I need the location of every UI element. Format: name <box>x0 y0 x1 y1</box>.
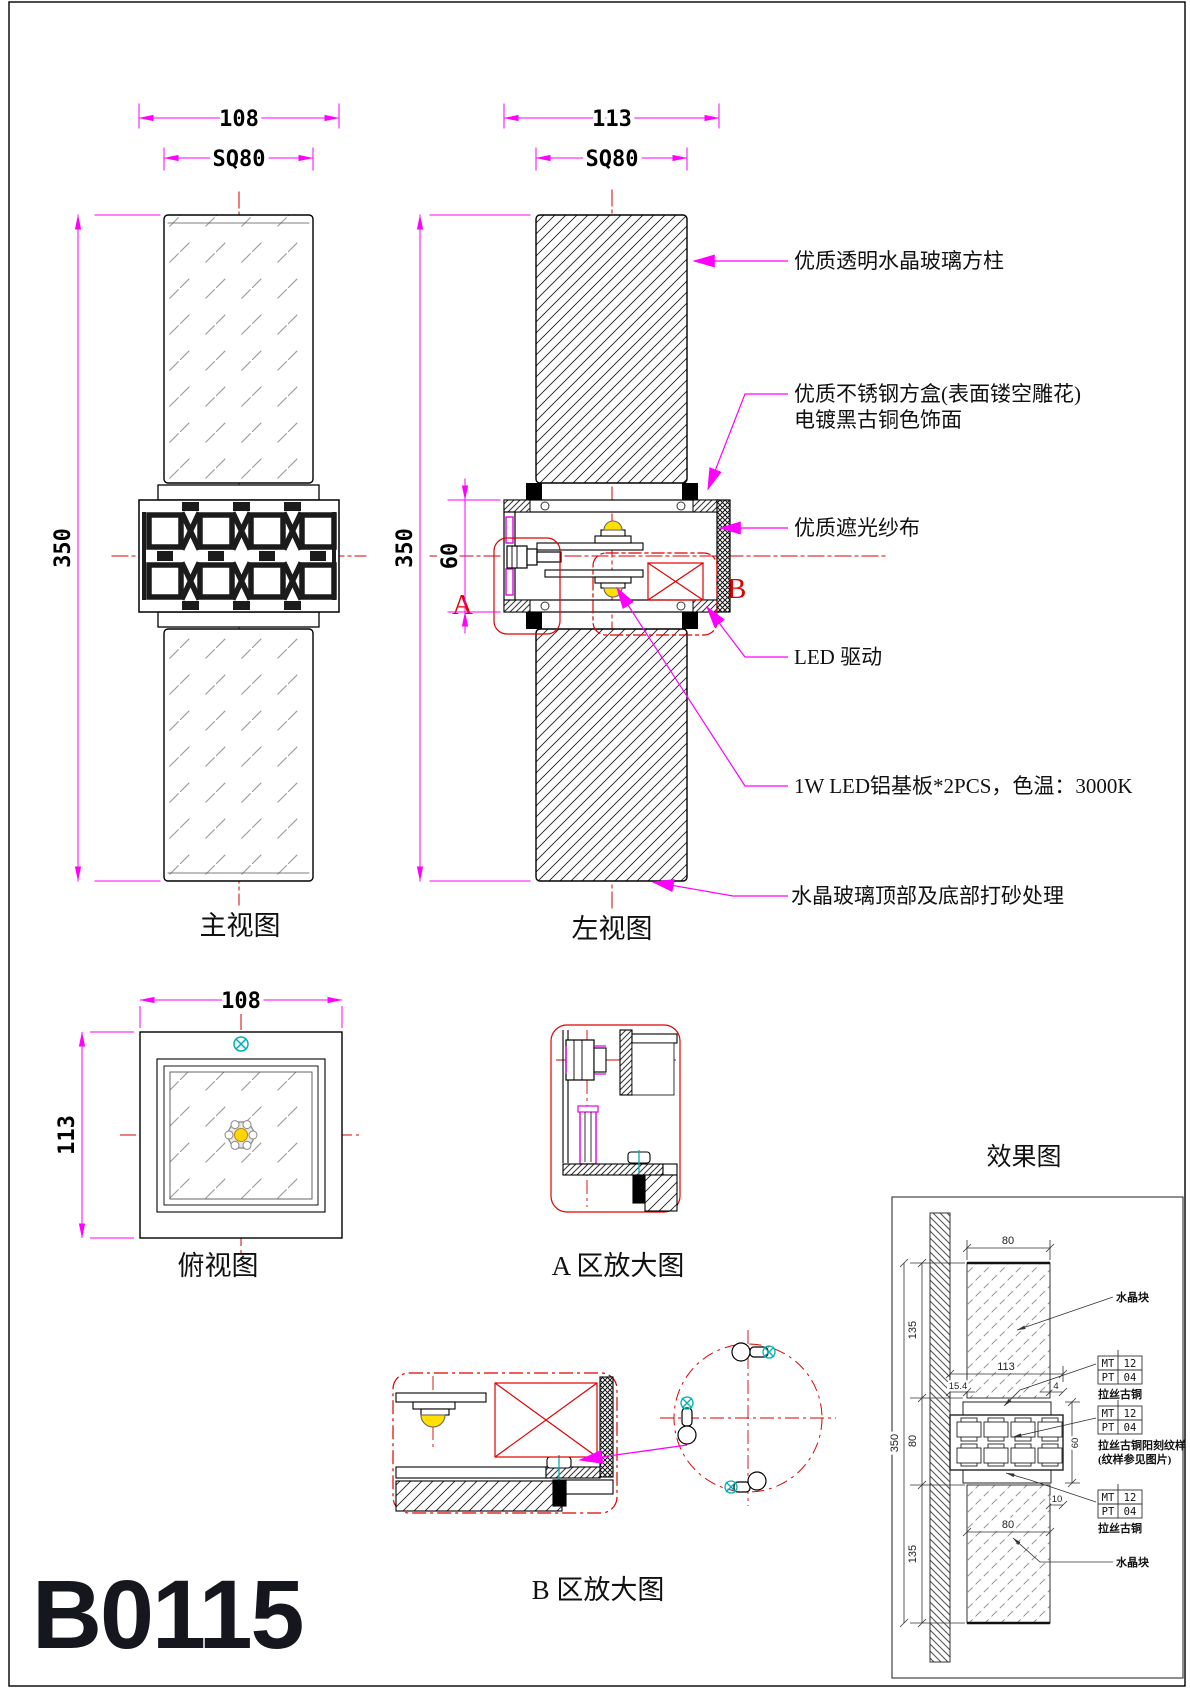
effect-note-top: 水晶块 <box>1116 1290 1150 1304</box>
annotation-sandblast: 水晶玻璃顶部及底部打砂处理 <box>791 884 1064 908</box>
table1-cell: 04 <box>1124 1372 1137 1384</box>
sheet-code: B0115 <box>32 1560 303 1669</box>
detail-b-led-dome <box>421 1415 445 1427</box>
zone-a-label: A <box>452 589 473 621</box>
left-dim-width: 113 <box>592 107 632 132</box>
eff-dim-lower-offset: 10 <box>1052 1494 1063 1505</box>
top-dim-width: 108 <box>221 989 261 1014</box>
front-glass-upper <box>164 215 313 483</box>
led-driver-box <box>648 563 703 600</box>
table3-cell: MT <box>1102 1492 1115 1504</box>
table1-cell: PT <box>1102 1372 1115 1384</box>
top-view-label: 俯视图 <box>178 1251 259 1281</box>
standoff-pin-top <box>506 517 513 543</box>
table2-cell: MT <box>1102 1408 1115 1420</box>
eff-dim-total-height: 350 <box>889 1434 901 1452</box>
eff-dim-box-height: 60 <box>1070 1438 1081 1449</box>
detail-a-parts <box>563 1030 677 1211</box>
led-dome-up <box>604 521 622 530</box>
detail-b-parts <box>396 1377 613 1511</box>
table1-label: 拉丝古铜 <box>1098 1387 1142 1401</box>
table1-cell: 12 <box>1124 1358 1137 1370</box>
table2-cell: PT <box>1102 1422 1115 1434</box>
front-flange-bottom <box>158 612 319 627</box>
effect-glass-upper <box>967 1263 1050 1398</box>
effect-note-bottom: 水晶块 <box>1116 1555 1150 1569</box>
detail-b-label: B 区放大图 <box>532 1575 665 1605</box>
detail-a: A 区放大图 <box>551 1025 684 1281</box>
table2-cell: 12 <box>1124 1408 1137 1420</box>
effect-diagram: 效果图 <box>889 1143 1186 1678</box>
fixing-ring-detail <box>580 1330 836 1506</box>
annotation-led-board: 1W LED铝基板*2PCS，色温：3000K <box>794 774 1133 798</box>
top-dim-depth: 113 <box>55 1115 80 1155</box>
left-view-label: 左视图 <box>572 914 653 944</box>
led-module-up <box>537 521 643 550</box>
clamp-screws <box>681 1346 775 1493</box>
clamp-icons <box>678 1343 768 1492</box>
left-dim-box-height: 60 <box>438 543 463 570</box>
zone-b-label: B <box>727 573 746 605</box>
table3-label: 拉丝古铜 <box>1098 1521 1142 1535</box>
effect-title: 效果图 <box>986 1143 1061 1171</box>
table3-cell: 12 <box>1124 1492 1137 1504</box>
front-dim-width: 108 <box>219 107 259 132</box>
table3-cell: 04 <box>1124 1506 1137 1518</box>
front-dim-height: 350 <box>51 528 76 568</box>
annotation-led-driver: LED 驱动 <box>794 645 882 669</box>
ring-leader <box>580 1445 687 1460</box>
front-view-label: 主视图 <box>200 911 281 941</box>
detail-a-label: A 区放大图 <box>552 1251 685 1281</box>
front-view: 108 SQ80 350 主视图 <box>51 104 366 941</box>
drawing-sheet: 108 SQ80 350 主视图 <box>0 0 1190 1690</box>
detail-b-driver-box <box>495 1383 597 1457</box>
annotation-glass-column: 优质透明水晶玻璃方柱 <box>794 249 1004 273</box>
fixing-screw-icon <box>234 1037 248 1051</box>
eff-dim-top-width: 80 <box>1002 1235 1014 1247</box>
eff-dim-zone-height: 80 <box>907 1435 919 1447</box>
front-flange-top <box>158 485 319 500</box>
eff-dim-lower-height: 135 <box>907 1545 919 1563</box>
table2-label: 拉丝古铜阳刻纹样 <box>1098 1438 1186 1452</box>
effect-wall <box>930 1213 950 1662</box>
front-glass-lower <box>164 629 313 881</box>
left-dim-height: 350 <box>393 528 418 568</box>
table2-label2: (纹样参见图片) <box>1098 1452 1172 1466</box>
top-view: 108 113 俯视图 <box>55 989 362 1281</box>
annotation-gauze: 优质遮光纱布 <box>794 516 920 540</box>
eff-dim-offset-left: 15.4 <box>949 1381 968 1392</box>
effect-glass-lower <box>967 1485 1050 1623</box>
annotation-steel-box-1: 优质不锈钢方盒(表面镂空雕花) <box>794 382 1081 406</box>
effect-steel-box <box>950 1402 1063 1483</box>
callout-annotations: 优质透明水晶玻璃方柱 优质不锈钢方盒(表面镂空雕花) 电镀黑古铜色饰面 优质遮光… <box>617 249 1133 908</box>
front-dim-square: SQ80 <box>213 147 266 172</box>
cad-canvas: 108 SQ80 350 主视图 <box>0 0 1190 1690</box>
table2-cell: 04 <box>1124 1422 1137 1434</box>
table3-cell: PT <box>1102 1506 1115 1518</box>
left-glass-upper <box>536 215 687 483</box>
left-glass-lower <box>536 629 687 881</box>
annotation-steel-box-2: 电镀黑古铜色饰面 <box>794 408 962 432</box>
table1-cell: MT <box>1102 1358 1115 1370</box>
eff-dim-upper-height: 135 <box>907 1321 919 1339</box>
eff-dim-depth: 113 <box>997 1361 1015 1373</box>
eff-dim-offset-right: 4 <box>1053 1381 1058 1392</box>
eff-dim-lower-width: 80 <box>1002 1519 1014 1531</box>
standoff-pin-bottom <box>506 569 513 595</box>
detail-b: B 区放大图 <box>393 1373 664 1605</box>
led-chip <box>235 1129 248 1142</box>
left-dim-square: SQ80 <box>586 147 639 172</box>
